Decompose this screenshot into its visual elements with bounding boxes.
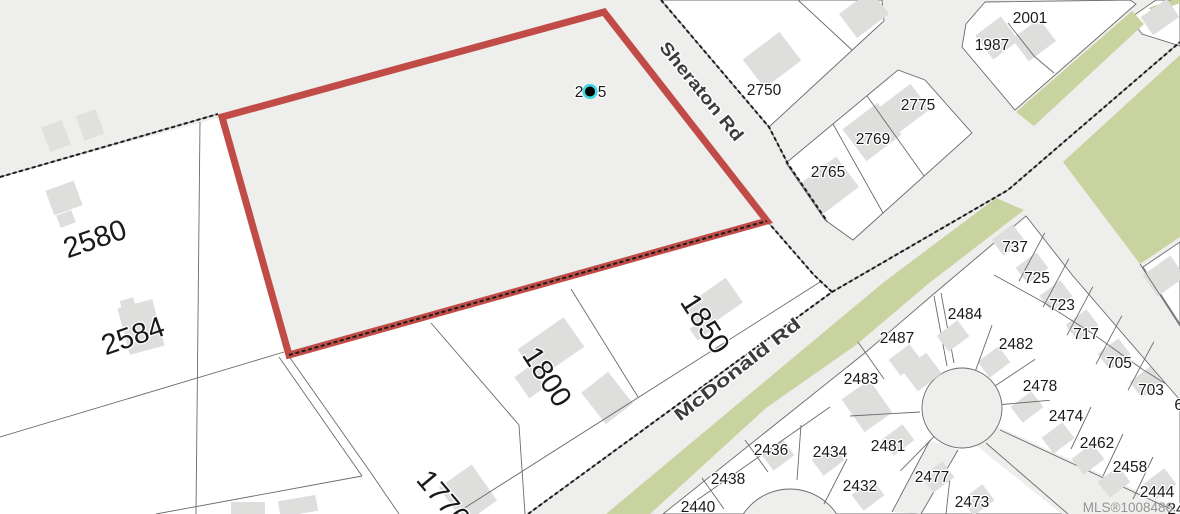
- svg-text:2775: 2775: [901, 97, 935, 114]
- svg-text:MLS®1008486: MLS®1008486: [1083, 500, 1173, 514]
- svg-text:717: 717: [1073, 326, 1099, 343]
- svg-text:723: 723: [1049, 297, 1075, 314]
- svg-text:2434: 2434: [813, 444, 848, 461]
- svg-text:2769: 2769: [856, 131, 890, 148]
- svg-text:5: 5: [598, 84, 607, 101]
- svg-text:2765: 2765: [811, 164, 845, 181]
- svg-text:725: 725: [1024, 270, 1050, 287]
- svg-text:1987: 1987: [975, 37, 1009, 54]
- svg-text:2462: 2462: [1080, 435, 1114, 452]
- svg-text:2484: 2484: [948, 306, 983, 323]
- svg-text:2438: 2438: [711, 471, 745, 488]
- svg-text:703: 703: [1138, 382, 1164, 399]
- svg-text:2: 2: [575, 84, 584, 101]
- svg-text:2474: 2474: [1049, 408, 1084, 425]
- svg-text:65: 65: [1174, 397, 1180, 414]
- svg-text:2477: 2477: [915, 469, 949, 486]
- svg-text:2478: 2478: [1023, 378, 1057, 395]
- svg-text:2001: 2001: [1013, 10, 1047, 27]
- svg-text:2473: 2473: [955, 494, 989, 511]
- svg-text:2750: 2750: [747, 82, 782, 99]
- svg-text:2436: 2436: [754, 442, 788, 459]
- svg-text:2444: 2444: [1140, 484, 1175, 501]
- svg-text:2481: 2481: [871, 438, 905, 455]
- svg-text:2440: 2440: [681, 499, 716, 514]
- svg-text:2487: 2487: [880, 330, 914, 347]
- svg-text:705: 705: [1106, 355, 1132, 372]
- svg-text:2458: 2458: [1113, 459, 1147, 476]
- svg-text:737: 737: [1002, 239, 1028, 256]
- svg-text:2432: 2432: [843, 478, 877, 495]
- svg-text:2483: 2483: [844, 371, 878, 388]
- svg-text:2482: 2482: [999, 336, 1033, 353]
